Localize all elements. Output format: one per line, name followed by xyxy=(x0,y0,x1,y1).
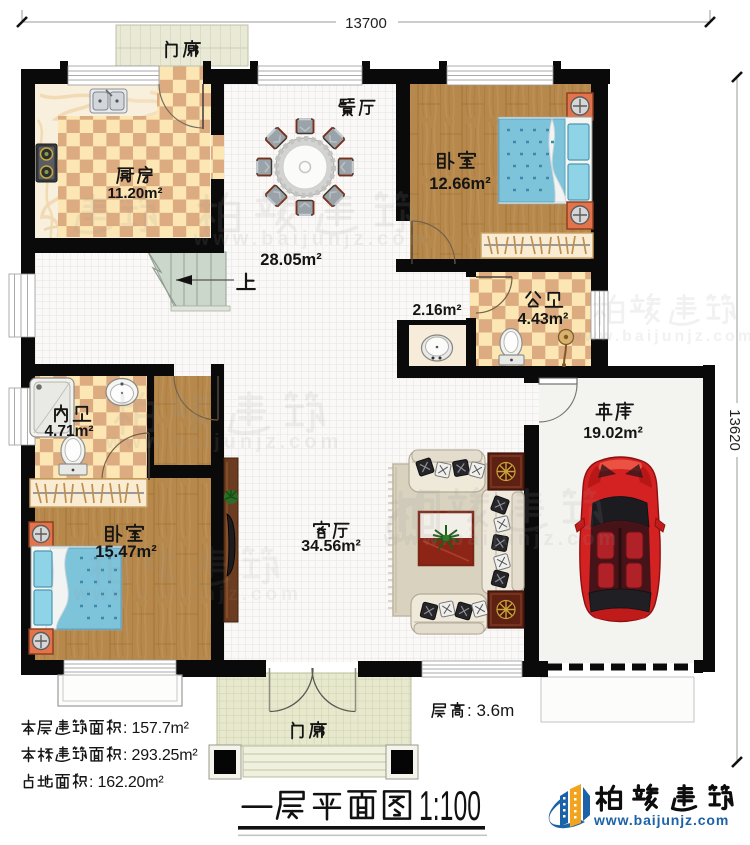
svg-text:13700: 13700 xyxy=(345,15,387,32)
svg-text:www.baijunjz.com: www.baijunjz.com xyxy=(593,812,729,828)
svg-text:15.47m²: 15.47m² xyxy=(95,543,157,561)
svg-text:28.05m²: 28.05m² xyxy=(260,251,322,269)
svg-text:www.baijunjz.com: www.baijunjz.com xyxy=(568,328,750,345)
svg-text:www.baijunjz.com: www.baijunjz.com xyxy=(383,528,621,550)
svg-text:: 3.6m: : 3.6m xyxy=(467,701,514,720)
svg-text:19.02m²: 19.02m² xyxy=(583,425,643,442)
svg-text:1:100: 1:100 xyxy=(419,782,481,829)
svg-text:12.66m²: 12.66m² xyxy=(429,175,491,193)
svg-text:: 157.7m²: : 157.7m² xyxy=(123,720,190,737)
svg-text:4.43m²: 4.43m² xyxy=(518,311,569,328)
svg-text:www.baijunjz.com: www.baijunjz.com xyxy=(193,228,431,250)
svg-text:: 293.25m²: : 293.25m² xyxy=(123,747,198,764)
svg-text:www.baijunjz.com: www.baijunjz.com xyxy=(105,431,343,453)
svg-text:4.71m²: 4.71m² xyxy=(44,423,93,440)
svg-text:www.baijunjz.com: www.baijunjz.com xyxy=(73,584,302,605)
svg-text:13620: 13620 xyxy=(726,409,743,451)
svg-text:34.56m²: 34.56m² xyxy=(301,538,361,555)
svg-text:: 162.20m²: : 162.20m² xyxy=(89,774,164,791)
svg-text:11.20m²: 11.20m² xyxy=(107,185,162,202)
svg-text:2.16m²: 2.16m² xyxy=(412,302,461,319)
